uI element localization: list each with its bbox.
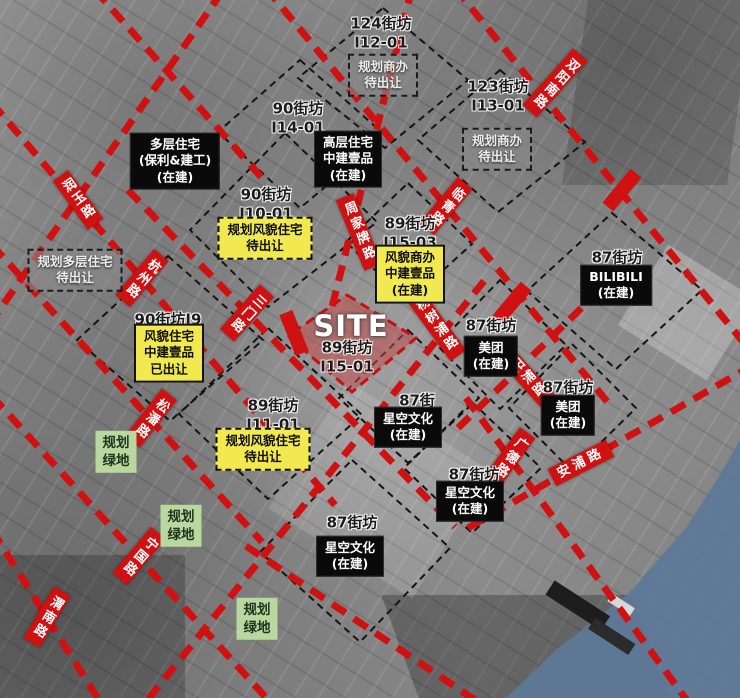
- parcel-box-guihua-shangban-2: 规划商办 待出让: [462, 128, 532, 171]
- project-box-xingkong-1: 星空文化 (在建): [374, 407, 442, 448]
- project-box-xingkong-2: 星空文化 (在建): [436, 481, 504, 522]
- parcel-box-guihua-shangban-1: 规划商办 待出让: [348, 54, 418, 97]
- green-space-label-3: 规划 绿地: [237, 598, 278, 640]
- block-label-87-meituan-1: 87街坊: [466, 317, 517, 336]
- green-space-label-2: 规划 绿地: [161, 505, 202, 547]
- project-box-baoli-jiangong: 多层住宅 (保利&建工) (在建): [130, 133, 220, 190]
- parcel-box-fengmao-shangban: 风貌商办 中建壹品 (在建): [375, 245, 445, 304]
- river-water-area: [506, 440, 740, 698]
- satellite-planning-map: 润玉路 双阳南路 杭州路 周家牌路 临青路 三门路 杨树浦路 阳浦路 广德路 安…: [0, 0, 740, 698]
- parcel-box-guihua-fengmao-1: 规划风貌住宅 待出让: [217, 217, 312, 260]
- project-box-xingkong-3: 星空文化 (在建): [316, 536, 384, 577]
- project-box-gaoceng-zhongjian: 高层住宅 中建壹品 (在建): [314, 131, 382, 188]
- site-block-label: 89街坊 I15-01: [320, 338, 374, 376]
- parcel-box-guihua-fengmao-2: 规划风貌住宅 待出让: [215, 428, 310, 471]
- block-label-124: 124街坊 I12-01: [350, 14, 411, 52]
- project-box-bilibili: BILIBILI (在建): [580, 265, 652, 306]
- parcel-box-fengmao-zhuzhai-sold: 风貌住宅 中建壹品 已出让: [134, 324, 204, 383]
- project-box-meituan-1: 美团 (在建): [464, 336, 518, 377]
- block-label-87-xingkong-3: 87街坊: [327, 514, 378, 533]
- parcel-box-guihua-duoceng: 规划多层住宅 待出让: [27, 249, 122, 292]
- green-space-label-1: 规划 绿地: [96, 431, 137, 473]
- block-label-123: 123街坊 I13-01: [467, 77, 528, 115]
- project-box-meituan-2: 美团 (在建): [541, 395, 595, 436]
